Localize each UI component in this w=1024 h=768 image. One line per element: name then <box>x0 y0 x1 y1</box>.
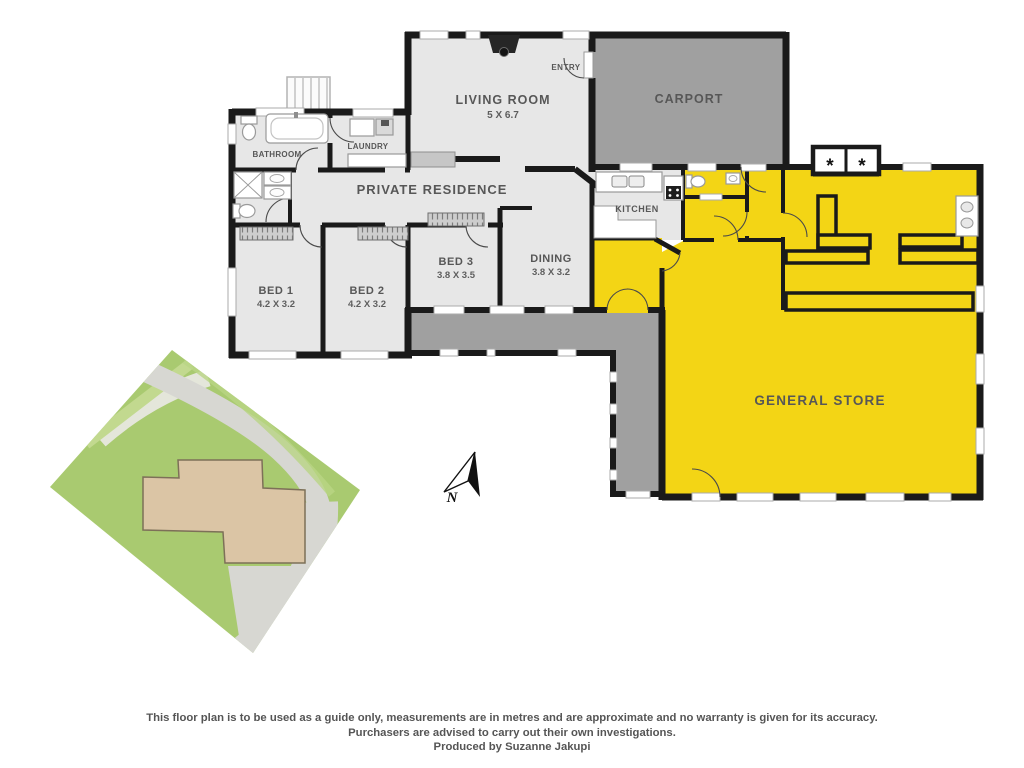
bed3-dims: 3.8 X 3.5 <box>437 270 476 281</box>
floorplan-canvas: * * N LIVING ROOM 5 X 6.7 ENTRY CARPORT … <box>0 0 1024 768</box>
dining-label: DINING <box>530 253 572 265</box>
bathroom-label: BATHROOM <box>253 150 302 159</box>
private-residence-title: PRIVATE RESIDENCE <box>357 182 508 197</box>
north-arrow: N <box>444 452 480 506</box>
laundry-label: LAUNDRY <box>348 142 389 151</box>
stove <box>664 176 683 200</box>
bed1-dims: 4.2 X 3.2 <box>257 299 295 310</box>
toilet-bathroom <box>241 116 257 140</box>
floorplan-page: * * N LIVING ROOM 5 X 6.7 ENTRY CARPORT … <box>0 0 1024 768</box>
living-room-label: LIVING ROOM <box>455 93 550 107</box>
dining-dims: 3.8 X 3.2 <box>532 267 570 278</box>
bed2-dims: 4.2 X 3.2 <box>348 299 386 310</box>
asterisk-left-marker: * <box>826 156 834 177</box>
north-label: N <box>446 490 459 506</box>
entry-door-leaf <box>584 52 593 78</box>
bed2-label: BED 2 <box>350 285 385 297</box>
verandah-floor <box>408 313 662 497</box>
carport-label: CARPORT <box>655 92 724 106</box>
general-store-label: GENERAL STORE <box>754 393 885 408</box>
laundry-bench <box>348 154 406 167</box>
living-room-dims: 5 X 6.7 <box>487 110 519 121</box>
site-plan <box>50 350 360 653</box>
store-entry-boxes: * * <box>813 147 879 177</box>
kitchen-label: KITCHEN <box>615 204 659 214</box>
producer-credit: Produced by Suzanne Jakupi <box>0 740 1024 755</box>
wardrobe-bed3 <box>428 213 484 226</box>
store-sink <box>956 196 978 236</box>
vanity-basins <box>264 172 291 199</box>
entry-label: ENTRY <box>551 63 580 72</box>
bed1-label: BED 1 <box>259 285 294 297</box>
hall-cupboard <box>411 152 455 167</box>
shower <box>234 172 262 198</box>
asterisk-right-marker: * <box>858 156 866 177</box>
wardrobe-bed2 <box>358 227 408 240</box>
disclaimer-line-1: This floor plan is to be used as a guide… <box>0 711 1024 726</box>
laundry-sink <box>350 119 374 136</box>
site-driveway-apron <box>228 566 312 649</box>
washing-machine <box>376 119 393 135</box>
disclaimer-line-2: Purchasers are advised to carry out thei… <box>0 726 1024 741</box>
kitchen-sink-counter <box>596 172 662 192</box>
footer-disclaimer: This floor plan is to be used as a guide… <box>0 711 1024 755</box>
toilet-wc <box>233 204 255 218</box>
bathtub <box>266 112 328 143</box>
bed3-label: BED 3 <box>439 256 474 268</box>
store-lobby-floor <box>592 238 662 313</box>
wardrobe-bed1 <box>240 227 293 240</box>
